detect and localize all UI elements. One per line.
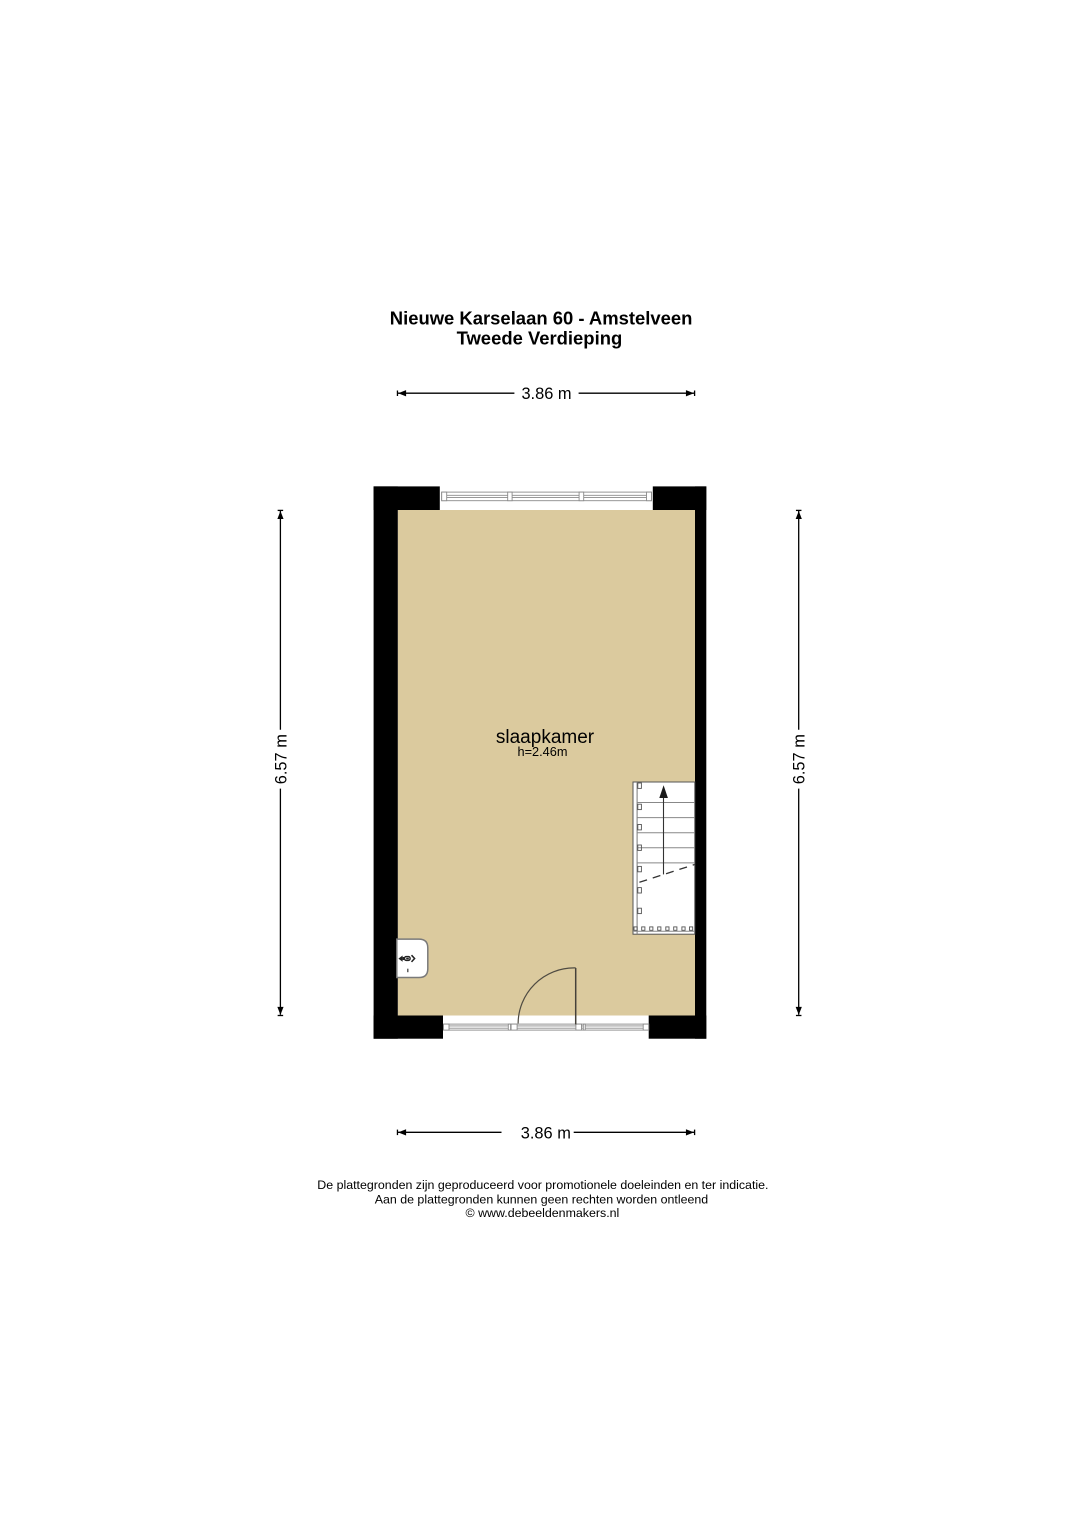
svg-text:6.57 m: 6.57 m — [791, 734, 809, 784]
svg-text:© www.debeeldenmakers.nl: © www.debeeldenmakers.nl — [466, 1206, 620, 1220]
svg-text:Tweede Verdieping: Tweede Verdieping — [457, 327, 623, 348]
svg-text:h=2.46m: h=2.46m — [518, 744, 568, 759]
svg-text:6.57 m: 6.57 m — [272, 734, 290, 784]
svg-text:Nieuwe Karselaan 60 - Amstelve: Nieuwe Karselaan 60 - Amstelveen — [390, 307, 693, 328]
svg-text:3.86 m: 3.86 m — [521, 385, 571, 403]
svg-text:Aan de plattegronden kunnen ge: Aan de plattegronden kunnen geen rechten… — [375, 1193, 709, 1207]
svg-text:De plattegronden zijn geproduc: De plattegronden zijn geproduceerd voor … — [317, 1178, 768, 1192]
svg-text:3.86 m: 3.86 m — [521, 1124, 571, 1142]
